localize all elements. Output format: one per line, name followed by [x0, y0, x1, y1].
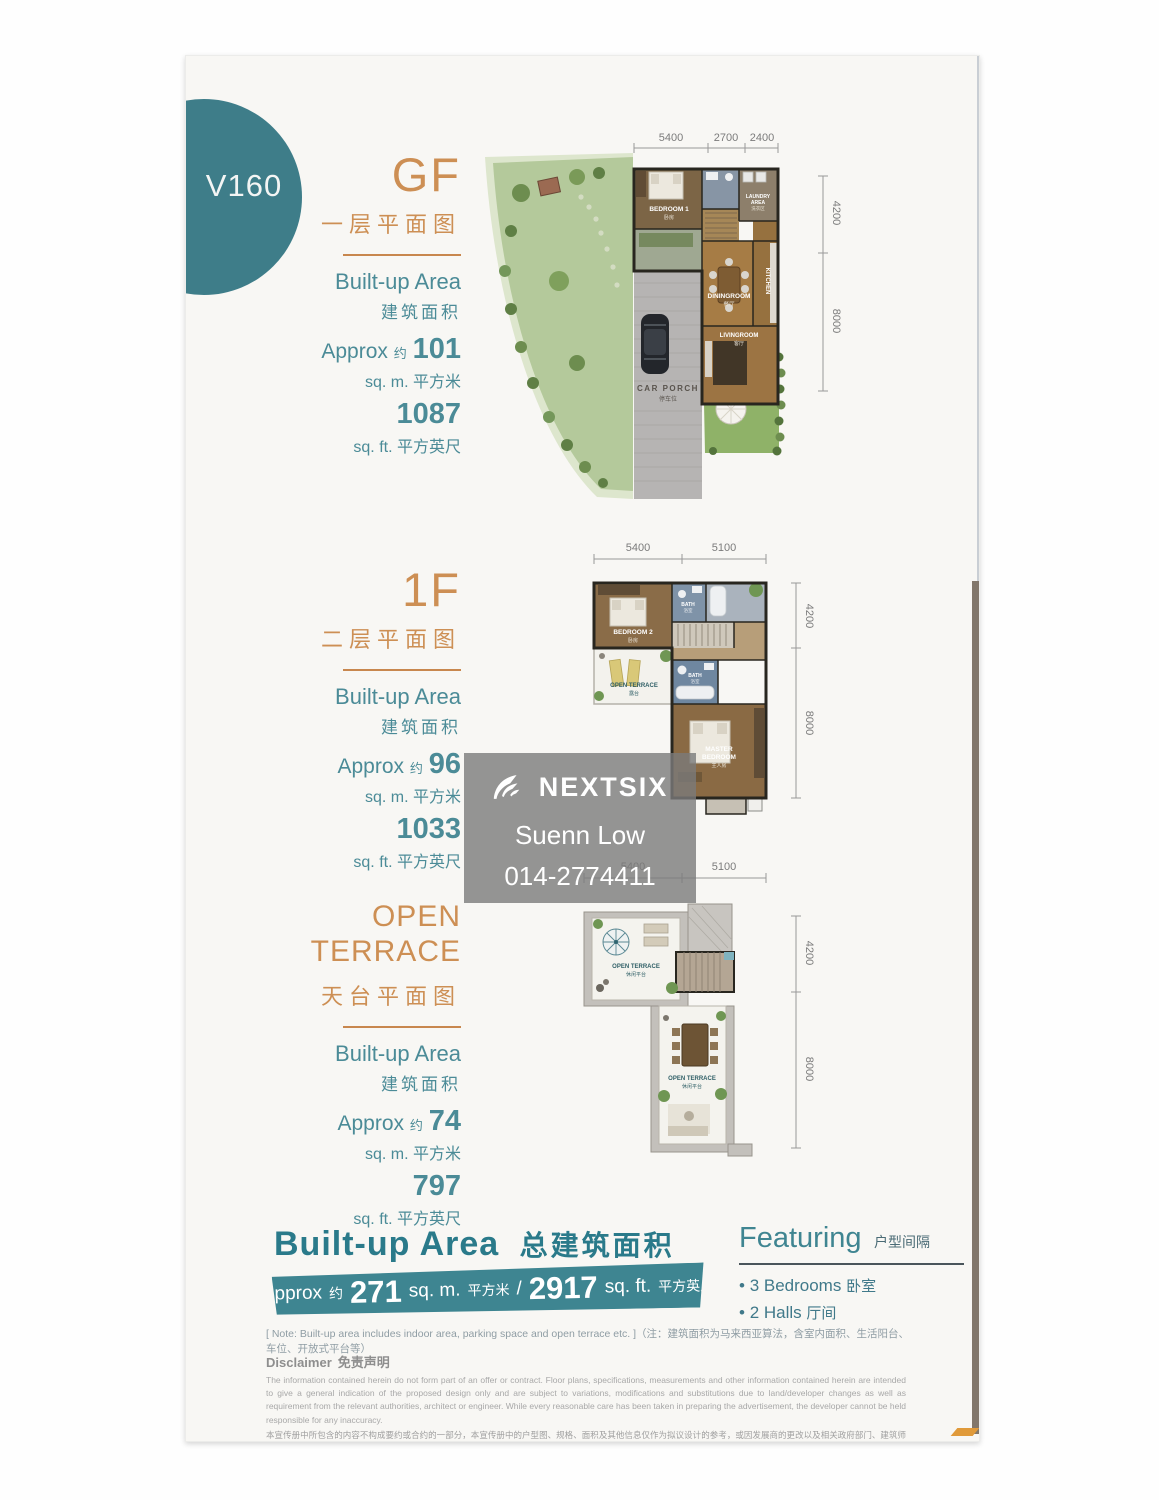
f1-dim-4200: 4200	[803, 604, 815, 628]
summary-title-cn: 总建筑面积	[520, 1230, 675, 1261]
gf-dim-2700: 2700	[714, 132, 738, 144]
gf-dim-4200: 4200	[830, 201, 842, 225]
master-label-cn: 主人房	[711, 762, 726, 769]
gf-sqft-unit: sq. ft. 平方英尺	[261, 433, 461, 457]
ot-sqm-value: 74	[429, 1105, 461, 1137]
ot-terrace1-label: OPEN TERRACE	[612, 964, 660, 970]
ot-builtup-en: Built-up Area	[261, 1041, 461, 1067]
ot-floor-plan: OPEN TERRACE 休闲平台 OPEN TERRACE 休闲平台 5400…	[556, 856, 886, 1186]
gf-sqft-value: 1087	[261, 398, 461, 431]
gf-dim-5400: 5400	[659, 132, 683, 144]
disclaimer-title: Disclaimer免责声明	[266, 1352, 906, 1371]
ot-terrace2-label: OPEN TERRACE	[668, 1076, 716, 1082]
carporch-label-cn: 停车位	[659, 395, 677, 403]
f1-sqft-unit: sq. ft. 平方英尺	[261, 848, 461, 872]
ot-subtitle-cn: 天台平面图	[261, 979, 461, 1011]
featuring-item-bedrooms: • 3 Bedrooms 卧室	[739, 1275, 969, 1296]
gf-approx-cn: 约	[394, 346, 407, 361]
gf-dim-8000: 8000	[830, 309, 842, 333]
page-edge-orange-tip	[951, 1428, 980, 1436]
f1-title: 1F	[261, 566, 461, 613]
bedroom1-label-cn: 卧房	[664, 214, 674, 221]
balcony	[706, 798, 746, 814]
ot-sqm-unit: sq. m. 平方米	[261, 1140, 461, 1164]
ot-terrace1-label-cn: 休闲平台	[626, 971, 646, 978]
summary-title-en: Built-up Area	[274, 1225, 499, 1263]
master-label-1: MASTER	[705, 746, 733, 753]
featuring-item-halls: • 2 Halls 厅间	[739, 1302, 969, 1323]
ot-skylight	[724, 952, 734, 960]
ot-walkway	[728, 1144, 752, 1156]
disclaimer-body-en: The information contained herein do not …	[266, 1374, 906, 1427]
gf-floor-plan: BEDROOM 1 卧房 LAUNDRY AREA 洗衣区 KITCHEN DI…	[481, 101, 901, 501]
banner-sqft-value: 2917	[528, 1269, 598, 1306]
f1-subtitle-cn: 二层平面图	[261, 622, 461, 654]
ot-approx-line: Approx 约 74	[261, 1105, 461, 1138]
f1-dim-5100: 5100	[712, 542, 736, 554]
watermark-agent-name: Suenn Low	[464, 820, 696, 851]
ac-ledge	[748, 799, 762, 811]
f1-builtup-cn: 建筑面积	[261, 713, 461, 738]
brochure-page: V160 GF 一层平面图 Built-up Area 建筑面积 Approx …	[185, 55, 980, 1442]
bath2-label-cn: 浴室	[691, 678, 700, 685]
f1-dim-5400: 5400	[626, 542, 650, 554]
laundry-label-cn: 洗衣区	[751, 205, 765, 212]
f1-terrace-label: OPEN TERRACE	[610, 683, 658, 689]
photo-canvas: V160 GF 一层平面图 Built-up Area 建筑面积 Approx …	[0, 0, 1159, 1500]
banner-sqm-value: 271	[350, 1273, 402, 1310]
gf-approx-line: Approx 约 101	[261, 333, 461, 366]
f1-sqm-value: 96	[429, 748, 461, 780]
nextsix-logo-icon	[492, 767, 532, 807]
f1-divider	[343, 669, 461, 671]
page-edge-top	[977, 56, 979, 581]
car	[641, 314, 669, 374]
gf-subtitle-cn: 一层平面图	[261, 207, 461, 239]
dining-label-cn: 餐厅	[723, 300, 735, 308]
master-label-2: BEDROOM	[702, 754, 736, 761]
gf-builtup-en: Built-up Area	[261, 269, 461, 295]
gf-dim-2400: 2400	[750, 132, 774, 144]
carporch-label: CAR PORCH	[637, 384, 699, 393]
banner-approx-cn: 约	[329, 1283, 343, 1303]
living-label: LIVINGROOM	[720, 333, 759, 339]
agent-watermark: NEXTSIX Suenn Low 014-2774411	[464, 753, 696, 903]
bedroom2-label-cn: 卧房	[628, 637, 638, 644]
disclaimer-body-cn: 本宣传册中所包含的内容不构成要约或合约的一部分，本宣传册中的户型图、规格、面积及…	[266, 1429, 906, 1442]
ot-terrace2-label-cn: 休闲平台	[682, 1083, 702, 1090]
gf-builtup-cn: 建筑面积	[261, 298, 461, 323]
page-edge-bottom	[972, 581, 979, 1434]
ot-info-block: OPEN TERRACE 天台平面图 Built-up Area 建筑面积 Ap…	[261, 899, 461, 1229]
ot-dining-set	[672, 1024, 718, 1066]
f1-terrace-label-cn: 露台	[629, 690, 639, 697]
ot-builtup-cn: 建筑面积	[261, 1070, 461, 1095]
gf-info-block: GF 一层平面图 Built-up Area 建筑面积 Approx 约 101…	[261, 151, 461, 457]
disclaimer-block: Disclaimer免责声明 The information contained…	[266, 1352, 906, 1442]
f1-info-block: 1F 二层平面图 Built-up Area 建筑面积 Approx 约 96 …	[261, 566, 461, 872]
planter	[639, 233, 693, 247]
f1-builtup-en: Built-up Area	[261, 684, 461, 710]
featuring-title: Featuring 户型间隔	[739, 1222, 969, 1255]
ot-dim-8000: 8000	[803, 1057, 815, 1081]
bedroom1-label: BEDROOM 1	[649, 206, 689, 213]
banner-approx-en: Approx	[262, 1282, 323, 1305]
living-label-cn: 客厅	[734, 340, 744, 347]
summary-banner: Approx 约 271 sq. m. 平方米 / 2917 sq. ft. 平…	[272, 1262, 705, 1316]
banner-separator: /	[516, 1278, 522, 1300]
ot-title: OPEN TERRACE	[261, 899, 461, 970]
f1-dim-8000: 8000	[803, 711, 815, 735]
ot-dim-4200: 4200	[803, 941, 815, 965]
watermark-brand: NEXTSIX	[539, 772, 669, 803]
featuring-block: Featuring 户型间隔 • 3 Bedrooms 卧室 • 2 Halls…	[739, 1222, 969, 1323]
f1-approx-line: Approx 约 96	[261, 748, 461, 781]
gf-sqm-value: 101	[413, 333, 461, 365]
gf-title: GF	[261, 151, 461, 198]
hall-floor	[702, 209, 739, 241]
gf-divider	[343, 254, 461, 256]
featuring-divider	[739, 1263, 964, 1265]
bedroom2-label: BEDROOM 2	[613, 629, 653, 636]
bath1-label-cn: 浴室	[684, 607, 693, 614]
summary-title: Built-up Area 总建筑面积	[274, 1224, 675, 1264]
ot-dim-5100: 5100	[712, 861, 736, 873]
watermark-logo-row: NEXTSIX	[464, 767, 696, 807]
gf-sqm-unit: sq. m. 平方米	[261, 368, 461, 392]
hallway-floor	[672, 648, 766, 660]
f1-sqft-value: 1033	[261, 813, 461, 846]
ot-sqft-value: 797	[261, 1170, 461, 1203]
ot-divider	[343, 1026, 461, 1028]
gf-approx-en: Approx	[321, 340, 388, 363]
dining-label: DININGROOM	[708, 293, 751, 300]
watermark-phone: 014-2774411	[464, 861, 696, 892]
kitchen-label: KITCHEN	[764, 268, 770, 295]
landing-floor	[734, 622, 766, 648]
stairs-floor	[672, 622, 734, 648]
ot-umbrella	[603, 929, 629, 955]
f1-sqm-unit: sq. m. 平方米	[261, 783, 461, 807]
